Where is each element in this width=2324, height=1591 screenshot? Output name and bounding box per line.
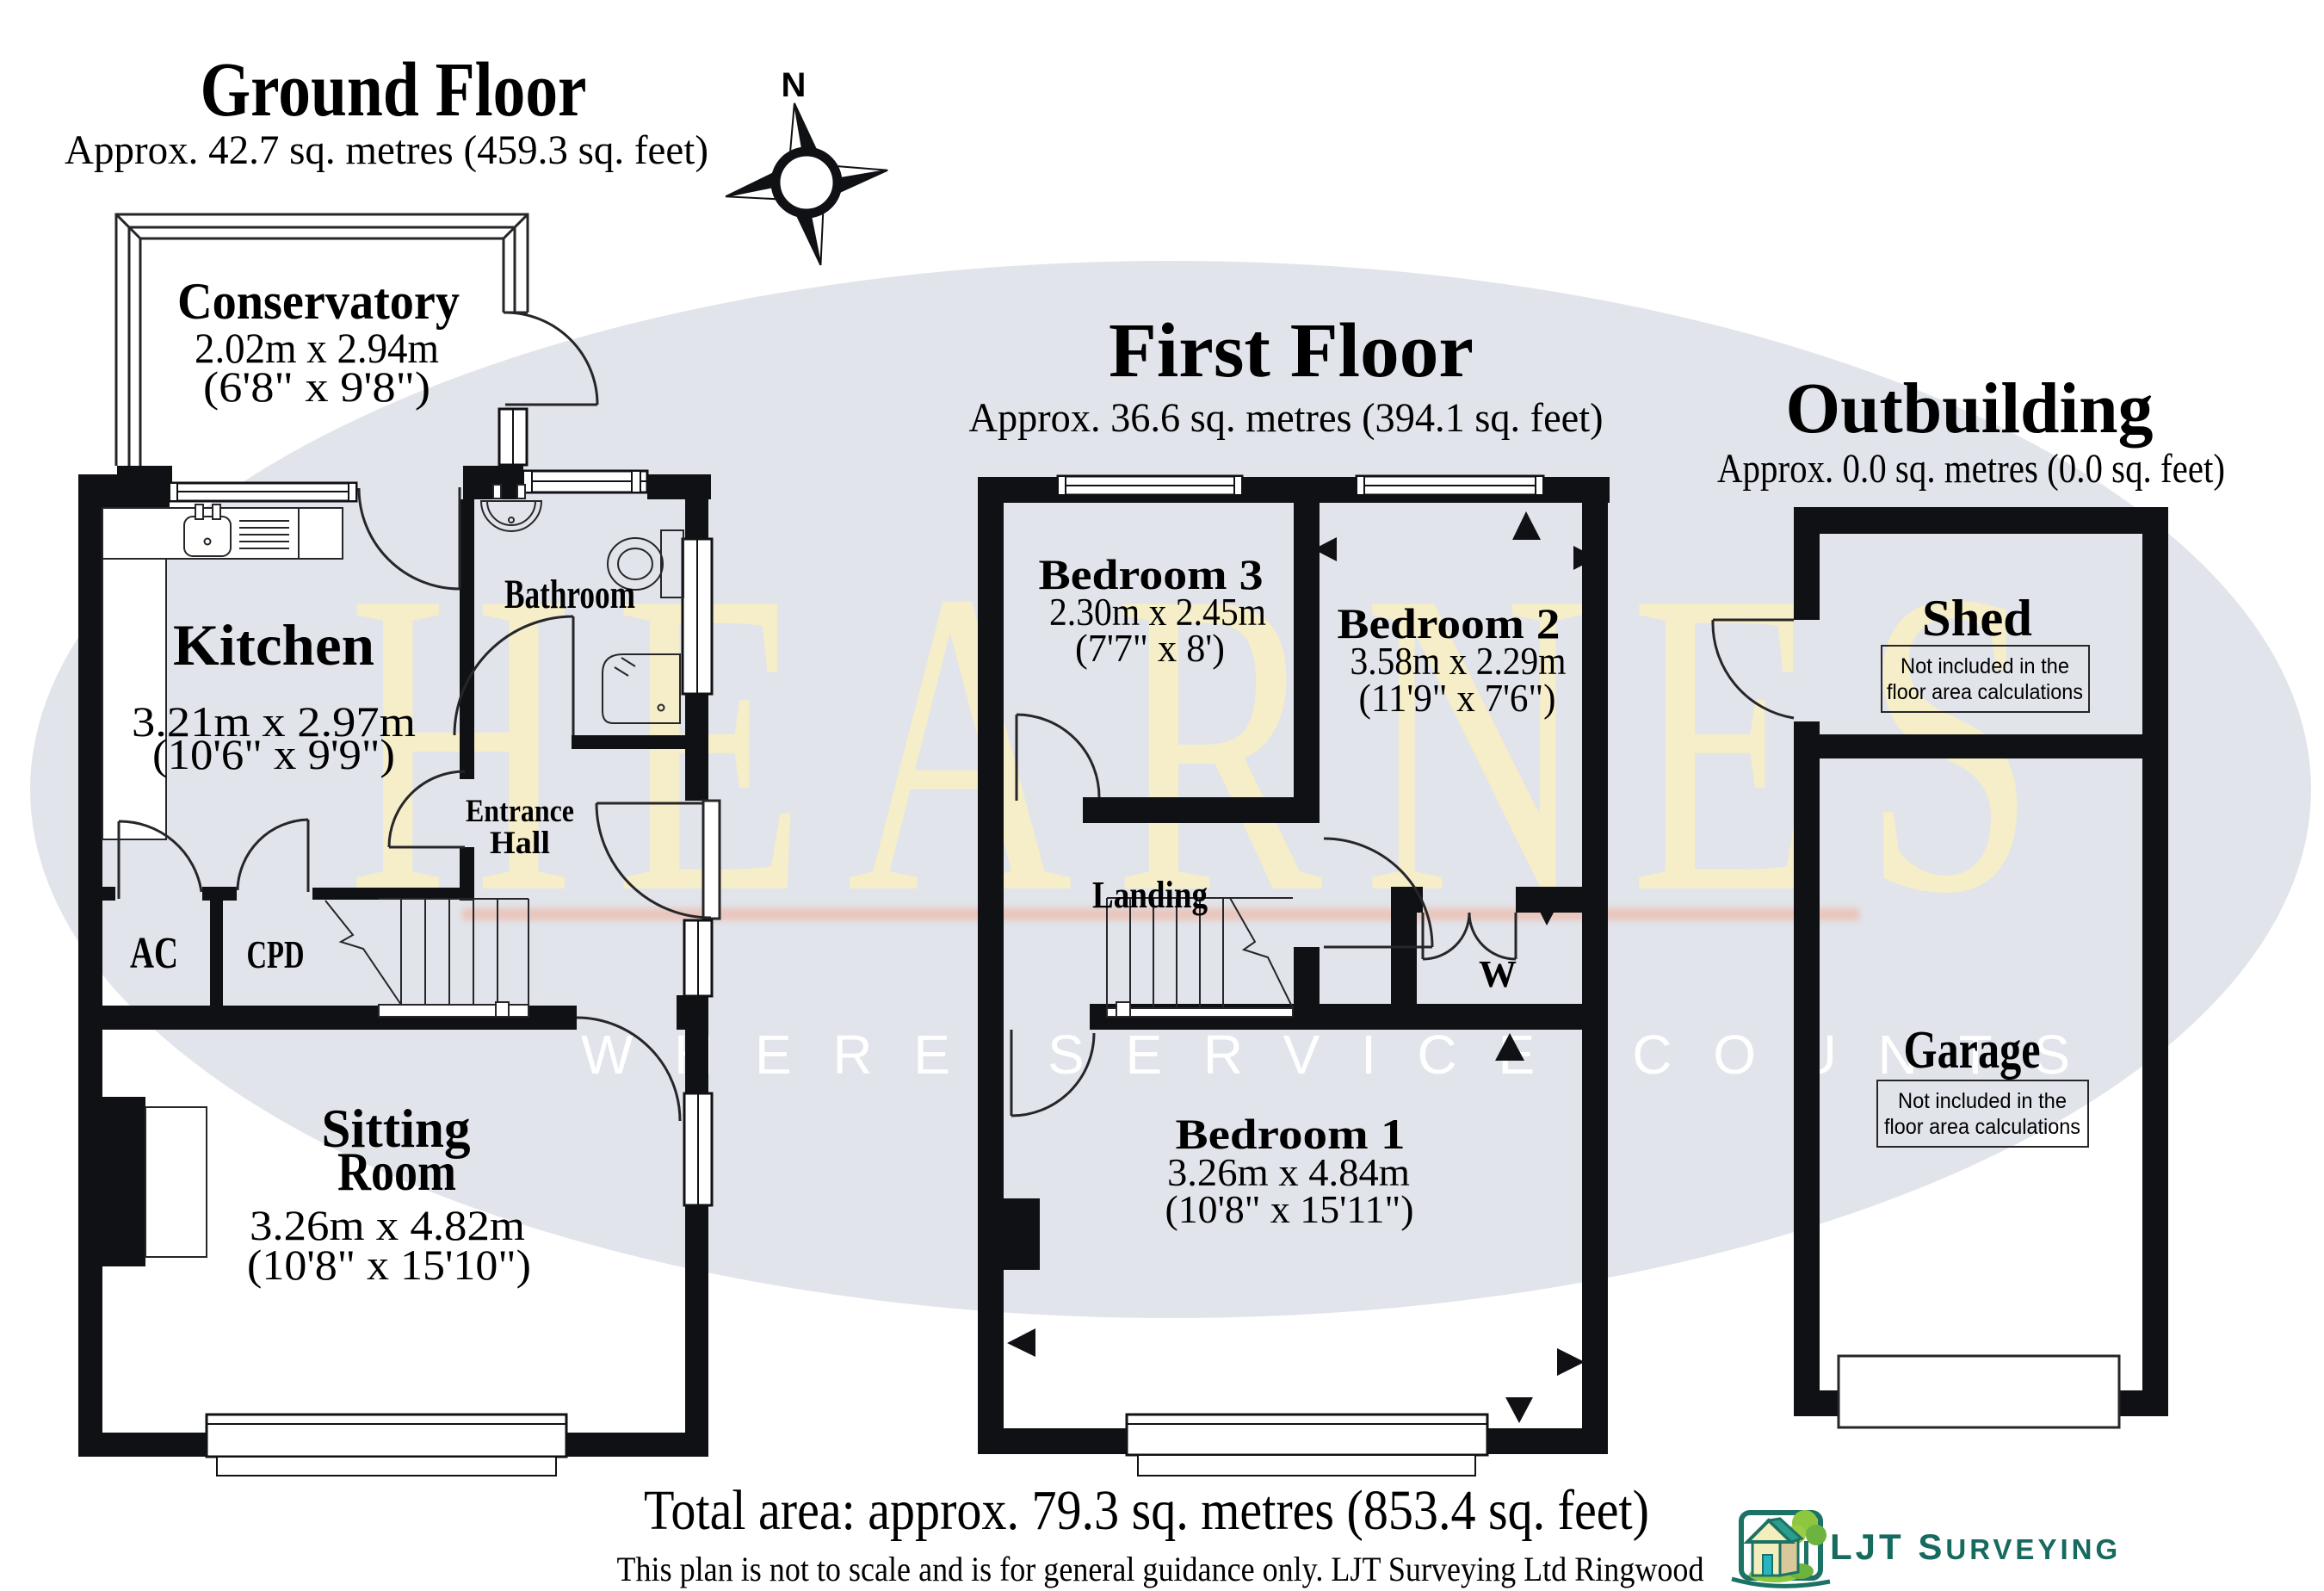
svg-text:(11'9" x 7'6"): (11'9" x 7'6") <box>1359 677 1556 720</box>
svg-text:Outbuilding: Outbuilding <box>1786 368 2154 449</box>
svg-text:LJT SURVEYING: LJT SURVEYING <box>1830 1526 2121 1567</box>
svg-text:Conservatory: Conservatory <box>177 273 460 330</box>
svg-text:Not included in the: Not included in the <box>1898 1089 2067 1113</box>
svg-text:Garage: Garage <box>1904 1021 2041 1080</box>
svg-text:Room: Room <box>337 1141 456 1202</box>
svg-text:(10'8" x 15'10"): (10'8" x 15'10") <box>247 1241 531 1289</box>
svg-text:(7'7" x 8'): (7'7" x 8') <box>1075 627 1225 670</box>
svg-text:(10'8" x 15'11"): (10'8" x 15'11") <box>1165 1188 1414 1231</box>
svg-text:floor area calculations: floor area calculations <box>1887 680 2083 704</box>
svg-text:Entrance: Entrance <box>466 794 574 829</box>
svg-text:Not included in the: Not included in the <box>1901 654 2069 678</box>
svg-text:Shed: Shed <box>1922 590 2032 647</box>
svg-text:W: W <box>1479 953 1517 995</box>
svg-text:First Floor: First Floor <box>1109 308 1474 393</box>
svg-text:Landing: Landing <box>1092 874 1208 916</box>
svg-text:Hall: Hall <box>490 826 550 861</box>
svg-text:(6'8" x 9'8"): (6'8" x 9'8") <box>203 362 430 411</box>
svg-text:CPD: CPD <box>247 932 305 976</box>
svg-text:Bathroom: Bathroom <box>504 572 635 617</box>
svg-text:This plan is not to scale and: This plan is not to scale and is for gen… <box>617 1550 1704 1588</box>
svg-text:Ground Floor: Ground Floor <box>201 47 587 133</box>
svg-text:Total area: approx. 79.3 sq. m: Total area: approx. 79.3 sq. metres (853… <box>644 1479 1649 1542</box>
svg-text:AC: AC <box>130 929 178 978</box>
svg-text:floor area calculations: floor area calculations <box>1884 1115 2080 1139</box>
svg-text:Approx. 36.6 sq. metres (394.1: Approx. 36.6 sq. metres (394.1 sq. feet) <box>969 395 1604 441</box>
svg-text:Approx. 42.7 sq. metres (459.3: Approx. 42.7 sq. metres (459.3 sq. feet) <box>65 127 708 173</box>
svg-text:N: N <box>782 66 807 104</box>
svg-text:(10'6" x 9'9"): (10'6" x 9'9") <box>152 730 395 778</box>
svg-text:Approx. 0.0 sq. metres (0.0 sq: Approx. 0.0 sq. metres (0.0 sq. feet) <box>1717 446 2225 492</box>
svg-text:Kitchen: Kitchen <box>173 612 374 678</box>
